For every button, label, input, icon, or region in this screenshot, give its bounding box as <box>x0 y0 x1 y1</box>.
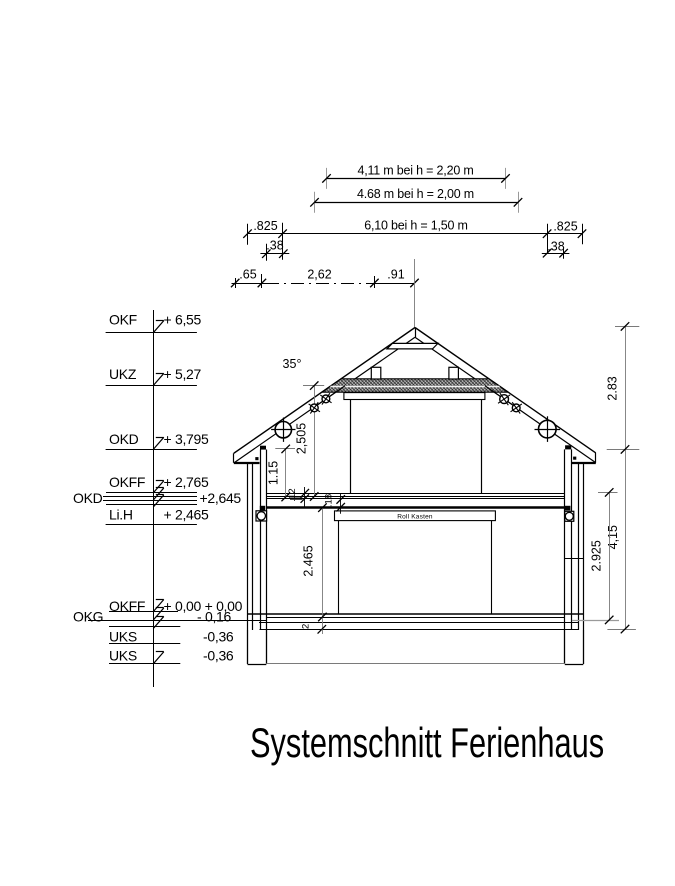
svg-text:UKS: UKS <box>109 648 137 664</box>
svg-text:2.925: 2.925 <box>590 540 604 571</box>
svg-text:4.68 m bei h = 2,00 m: 4.68 m bei h = 2,00 m <box>357 187 474 201</box>
svg-text:+ 5,27: + 5,27 <box>164 366 202 382</box>
svg-text:2,62: 2,62 <box>307 268 331 282</box>
svg-text:2.83: 2.83 <box>606 376 620 400</box>
svg-text:.825: .825 <box>553 220 577 234</box>
svg-text:Systemschnitt Ferienhaus: Systemschnitt Ferienhaus <box>250 720 604 767</box>
svg-text:OKD: OKD <box>73 490 103 506</box>
svg-text:1.15: 1.15 <box>267 461 281 485</box>
svg-text:.65: .65 <box>239 268 256 282</box>
svg-text:OKFF: OKFF <box>109 474 145 490</box>
svg-text:+ 6,55: + 6,55 <box>164 312 202 328</box>
svg-text:OKD: OKD <box>109 431 139 447</box>
svg-text:+2,645: +2,645 <box>200 490 242 506</box>
svg-text:.38: .38 <box>547 240 564 254</box>
svg-text:UKZ: UKZ <box>109 366 137 382</box>
svg-text:2,505: 2,505 <box>295 423 309 454</box>
svg-text:UKS: UKS <box>109 629 137 645</box>
svg-text:4,11 m bei h = 2,20 m: 4,11 m bei h = 2,20 m <box>357 163 473 177</box>
svg-text:.91: .91 <box>387 268 404 282</box>
svg-text:6,10 bei h = 1,50 m: 6,10 bei h = 1,50 m <box>364 219 468 233</box>
svg-text:35°: 35° <box>283 357 302 371</box>
svg-text:-0,36: -0,36 <box>203 629 234 645</box>
svg-text:Roll Kasten: Roll Kasten <box>397 514 433 521</box>
svg-text:Li.H: Li.H <box>109 507 133 523</box>
svg-text:4,15: 4,15 <box>606 525 620 549</box>
svg-text:.12: .12 <box>287 488 298 501</box>
svg-text:+ 2,765: + 2,765 <box>164 474 210 490</box>
svg-text:- 0,16: - 0,16 <box>197 609 232 625</box>
svg-text:.38: .38 <box>266 239 283 253</box>
svg-text:2.465: 2.465 <box>302 545 316 576</box>
svg-text:2: 2 <box>301 624 312 629</box>
svg-text:+ 3,795: + 3,795 <box>164 431 210 447</box>
svg-text:.825: .825 <box>253 219 277 233</box>
svg-text:+ 2,465: + 2,465 <box>164 507 210 523</box>
svg-text:OKF: OKF <box>109 312 137 328</box>
svg-text:OKG: OKG <box>73 609 103 625</box>
svg-text:-0,36: -0,36 <box>203 648 234 664</box>
